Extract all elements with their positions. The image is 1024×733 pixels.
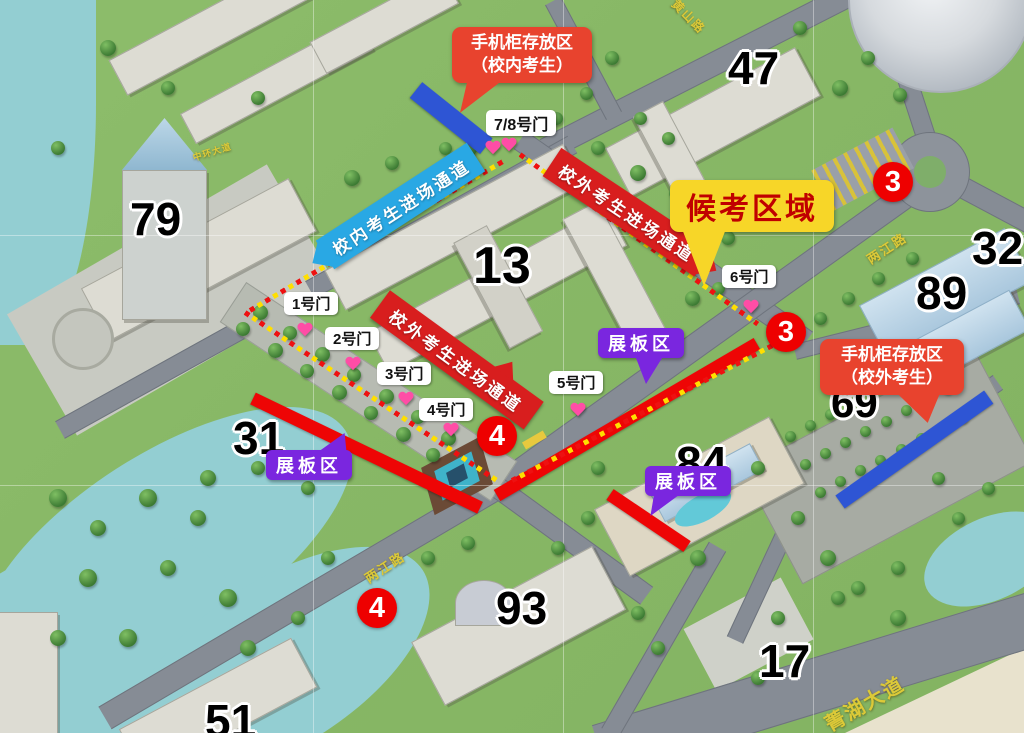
tree: [581, 511, 595, 525]
tree: [932, 472, 945, 485]
tree: [685, 291, 700, 306]
tree: [251, 91, 265, 105]
tree: [890, 610, 906, 626]
zone-label: 展板区: [608, 334, 674, 354]
tree: [301, 481, 315, 495]
tree: [820, 550, 836, 566]
zone-label: 展板区: [655, 472, 721, 492]
tree: [906, 252, 919, 265]
callout-line: 手机柜存放区: [824, 344, 960, 367]
tree: [832, 80, 848, 96]
zone-board-84: 展板区: [645, 466, 731, 496]
tree: [291, 611, 305, 625]
gate-label-4: 4号门: [419, 398, 473, 421]
callout-tail: [460, 83, 506, 113]
tree: [591, 141, 605, 155]
tree: [605, 51, 619, 65]
tree: [891, 561, 905, 575]
tree: [461, 536, 475, 550]
tree: [551, 541, 565, 555]
tree: [982, 482, 995, 495]
gate-pin-7: [485, 141, 501, 156]
tree: [219, 589, 237, 607]
tree: [268, 343, 283, 358]
zone-board-left: 展板区: [266, 450, 352, 480]
tree: [79, 569, 97, 587]
tree: [51, 141, 65, 155]
grid-line: [813, 0, 814, 733]
tree: [881, 416, 892, 427]
tree: [651, 641, 665, 655]
gate-pin-5: [570, 403, 586, 418]
callout-line: 候考区域: [670, 184, 834, 228]
tree: [100, 40, 116, 56]
tree: [820, 448, 831, 459]
building-number-47: 47: [728, 45, 779, 91]
checkpoint-4-mid: 4: [477, 416, 517, 456]
callout-phone-locker-internal: 手机柜存放区 （校内考生）: [452, 27, 592, 83]
building-number-79: 79: [130, 196, 181, 242]
gate-label-6: 6号门: [722, 265, 776, 288]
tree: [344, 170, 360, 186]
tree: [800, 459, 811, 470]
tree: [771, 611, 785, 625]
tree: [580, 87, 593, 100]
tree: [815, 487, 826, 498]
gate-pin-8: [501, 138, 517, 153]
tree: [321, 551, 335, 565]
gate-label-5: 5号门: [549, 371, 603, 394]
tree: [421, 551, 435, 565]
tree: [893, 88, 907, 102]
tree: [851, 581, 865, 595]
tree: [872, 272, 885, 285]
tree: [49, 489, 67, 507]
tree: [190, 510, 206, 526]
tree: [791, 511, 805, 525]
tree: [831, 591, 845, 605]
tree: [785, 431, 796, 442]
gate-pin-4: [443, 423, 459, 438]
tree: [119, 629, 137, 647]
building-number-89: 89: [916, 270, 967, 316]
road-label-huangshan: 黄山路: [668, 0, 710, 37]
zone-board-center: 展板区: [598, 328, 684, 358]
tree: [835, 476, 846, 487]
tree: [814, 312, 827, 325]
gate-label-3: 3号门: [377, 362, 431, 385]
tree: [901, 405, 912, 416]
tree: [805, 420, 816, 431]
callout-line: （校外考生）: [824, 367, 960, 390]
tree: [236, 322, 250, 336]
gate-pin-1: [297, 323, 313, 338]
tree: [662, 132, 675, 145]
tree: [630, 165, 646, 181]
building-number-51: 51: [205, 698, 256, 733]
tree: [161, 81, 175, 95]
roundabout-island: [914, 156, 946, 188]
zone-label: 展板区: [276, 456, 342, 476]
tree: [751, 461, 765, 475]
tree: [396, 427, 411, 442]
tree: [842, 292, 855, 305]
tree: [426, 448, 440, 462]
tree: [200, 470, 216, 486]
grid-line: [563, 0, 564, 733]
stadium-dome: [848, 0, 1024, 93]
tree: [690, 550, 706, 566]
grid-line: [313, 0, 314, 733]
tree: [90, 520, 106, 536]
building-number-13: 13: [473, 240, 531, 292]
tree: [631, 606, 645, 620]
building-left-edge: [0, 612, 58, 733]
building-number-32: 32: [972, 225, 1023, 271]
building-number-17: 17: [759, 638, 810, 684]
tree: [634, 112, 647, 125]
gate-pin-3: [398, 392, 414, 407]
building-number-93: 93: [496, 585, 547, 631]
building-topleft-3: [310, 0, 459, 74]
tree: [50, 630, 66, 646]
campus-map: 79 13 47 31 32 89 69 84 93 51 17 黄山路 两江路…: [0, 0, 1024, 733]
tree: [332, 385, 347, 400]
tree: [160, 560, 176, 576]
callout-line: （校内考生）: [456, 55, 588, 78]
callout-waiting-area: 候考区域: [670, 180, 834, 232]
tree: [385, 156, 399, 170]
gate-pin-6: [743, 300, 759, 315]
tree: [861, 51, 875, 65]
tree: [793, 21, 807, 35]
tree: [300, 364, 314, 378]
gate-label-2: 2号门: [325, 327, 379, 350]
tree: [952, 512, 965, 525]
tree: [240, 640, 256, 656]
gate-pin-2: [345, 357, 361, 372]
building-79-annex: [52, 308, 114, 370]
gate-label-7-8: 7/8号门: [486, 110, 556, 136]
gate-label-1: 1号门: [284, 292, 338, 315]
tree: [591, 461, 605, 475]
checkpoint-3-mid: 3: [766, 312, 806, 352]
callout-phone-locker-external: 手机柜存放区 （校外考生）: [820, 339, 964, 395]
checkpoint-3-top: 3: [873, 162, 913, 202]
callout-line: 手机柜存放区: [456, 32, 588, 55]
tree: [139, 489, 157, 507]
checkpoint-4-bottom: 4: [357, 588, 397, 628]
tree: [364, 406, 378, 420]
